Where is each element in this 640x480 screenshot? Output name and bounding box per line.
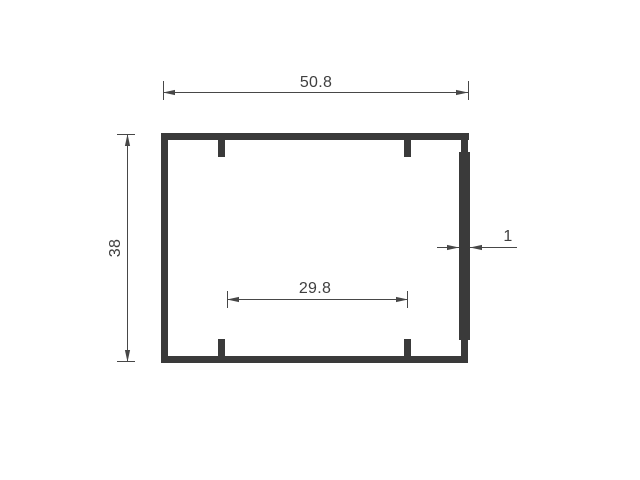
dimension-wall-thickness-label: 1 xyxy=(503,228,512,245)
dimension-overall-width-label: 50.8 xyxy=(300,74,332,91)
dimension-overall-width: 50.8 xyxy=(163,74,469,100)
dim-arrow-left-icon xyxy=(470,245,482,250)
profile-tab-bottom-left xyxy=(218,339,225,356)
dim-arrow-right-icon xyxy=(456,90,468,95)
dimension-wall-thickness: 1 xyxy=(437,228,517,250)
dimension-inner-span-label: 29.8 xyxy=(299,280,331,297)
dimension-overall-height-label: 38 xyxy=(107,239,124,257)
profile-top-wall xyxy=(161,133,469,140)
profile-drawing: 50.8 38 29.8 1 xyxy=(0,0,640,480)
profile-tab-top-right xyxy=(404,140,411,157)
dim-arrow-up-icon xyxy=(125,134,130,146)
profile-bottom-wall xyxy=(161,356,468,363)
dim-arrow-left-icon xyxy=(163,90,175,95)
drawing-canvas: 50.8 38 29.8 1 xyxy=(0,0,640,480)
dim-arrow-right-icon xyxy=(447,245,459,250)
dimension-overall-height: 38 xyxy=(107,134,135,362)
dimension-inner-span: 29.8 xyxy=(227,280,408,308)
profile-cover-panel xyxy=(459,152,470,340)
dim-arrow-left-icon xyxy=(227,297,239,302)
profile-tab-top-left xyxy=(218,140,225,157)
profile-tab-bottom-right xyxy=(404,339,411,356)
profile-outline xyxy=(161,133,470,363)
profile-left-wall xyxy=(161,133,168,363)
dim-arrow-down-icon xyxy=(125,350,130,362)
dim-arrow-right-icon xyxy=(396,297,408,302)
